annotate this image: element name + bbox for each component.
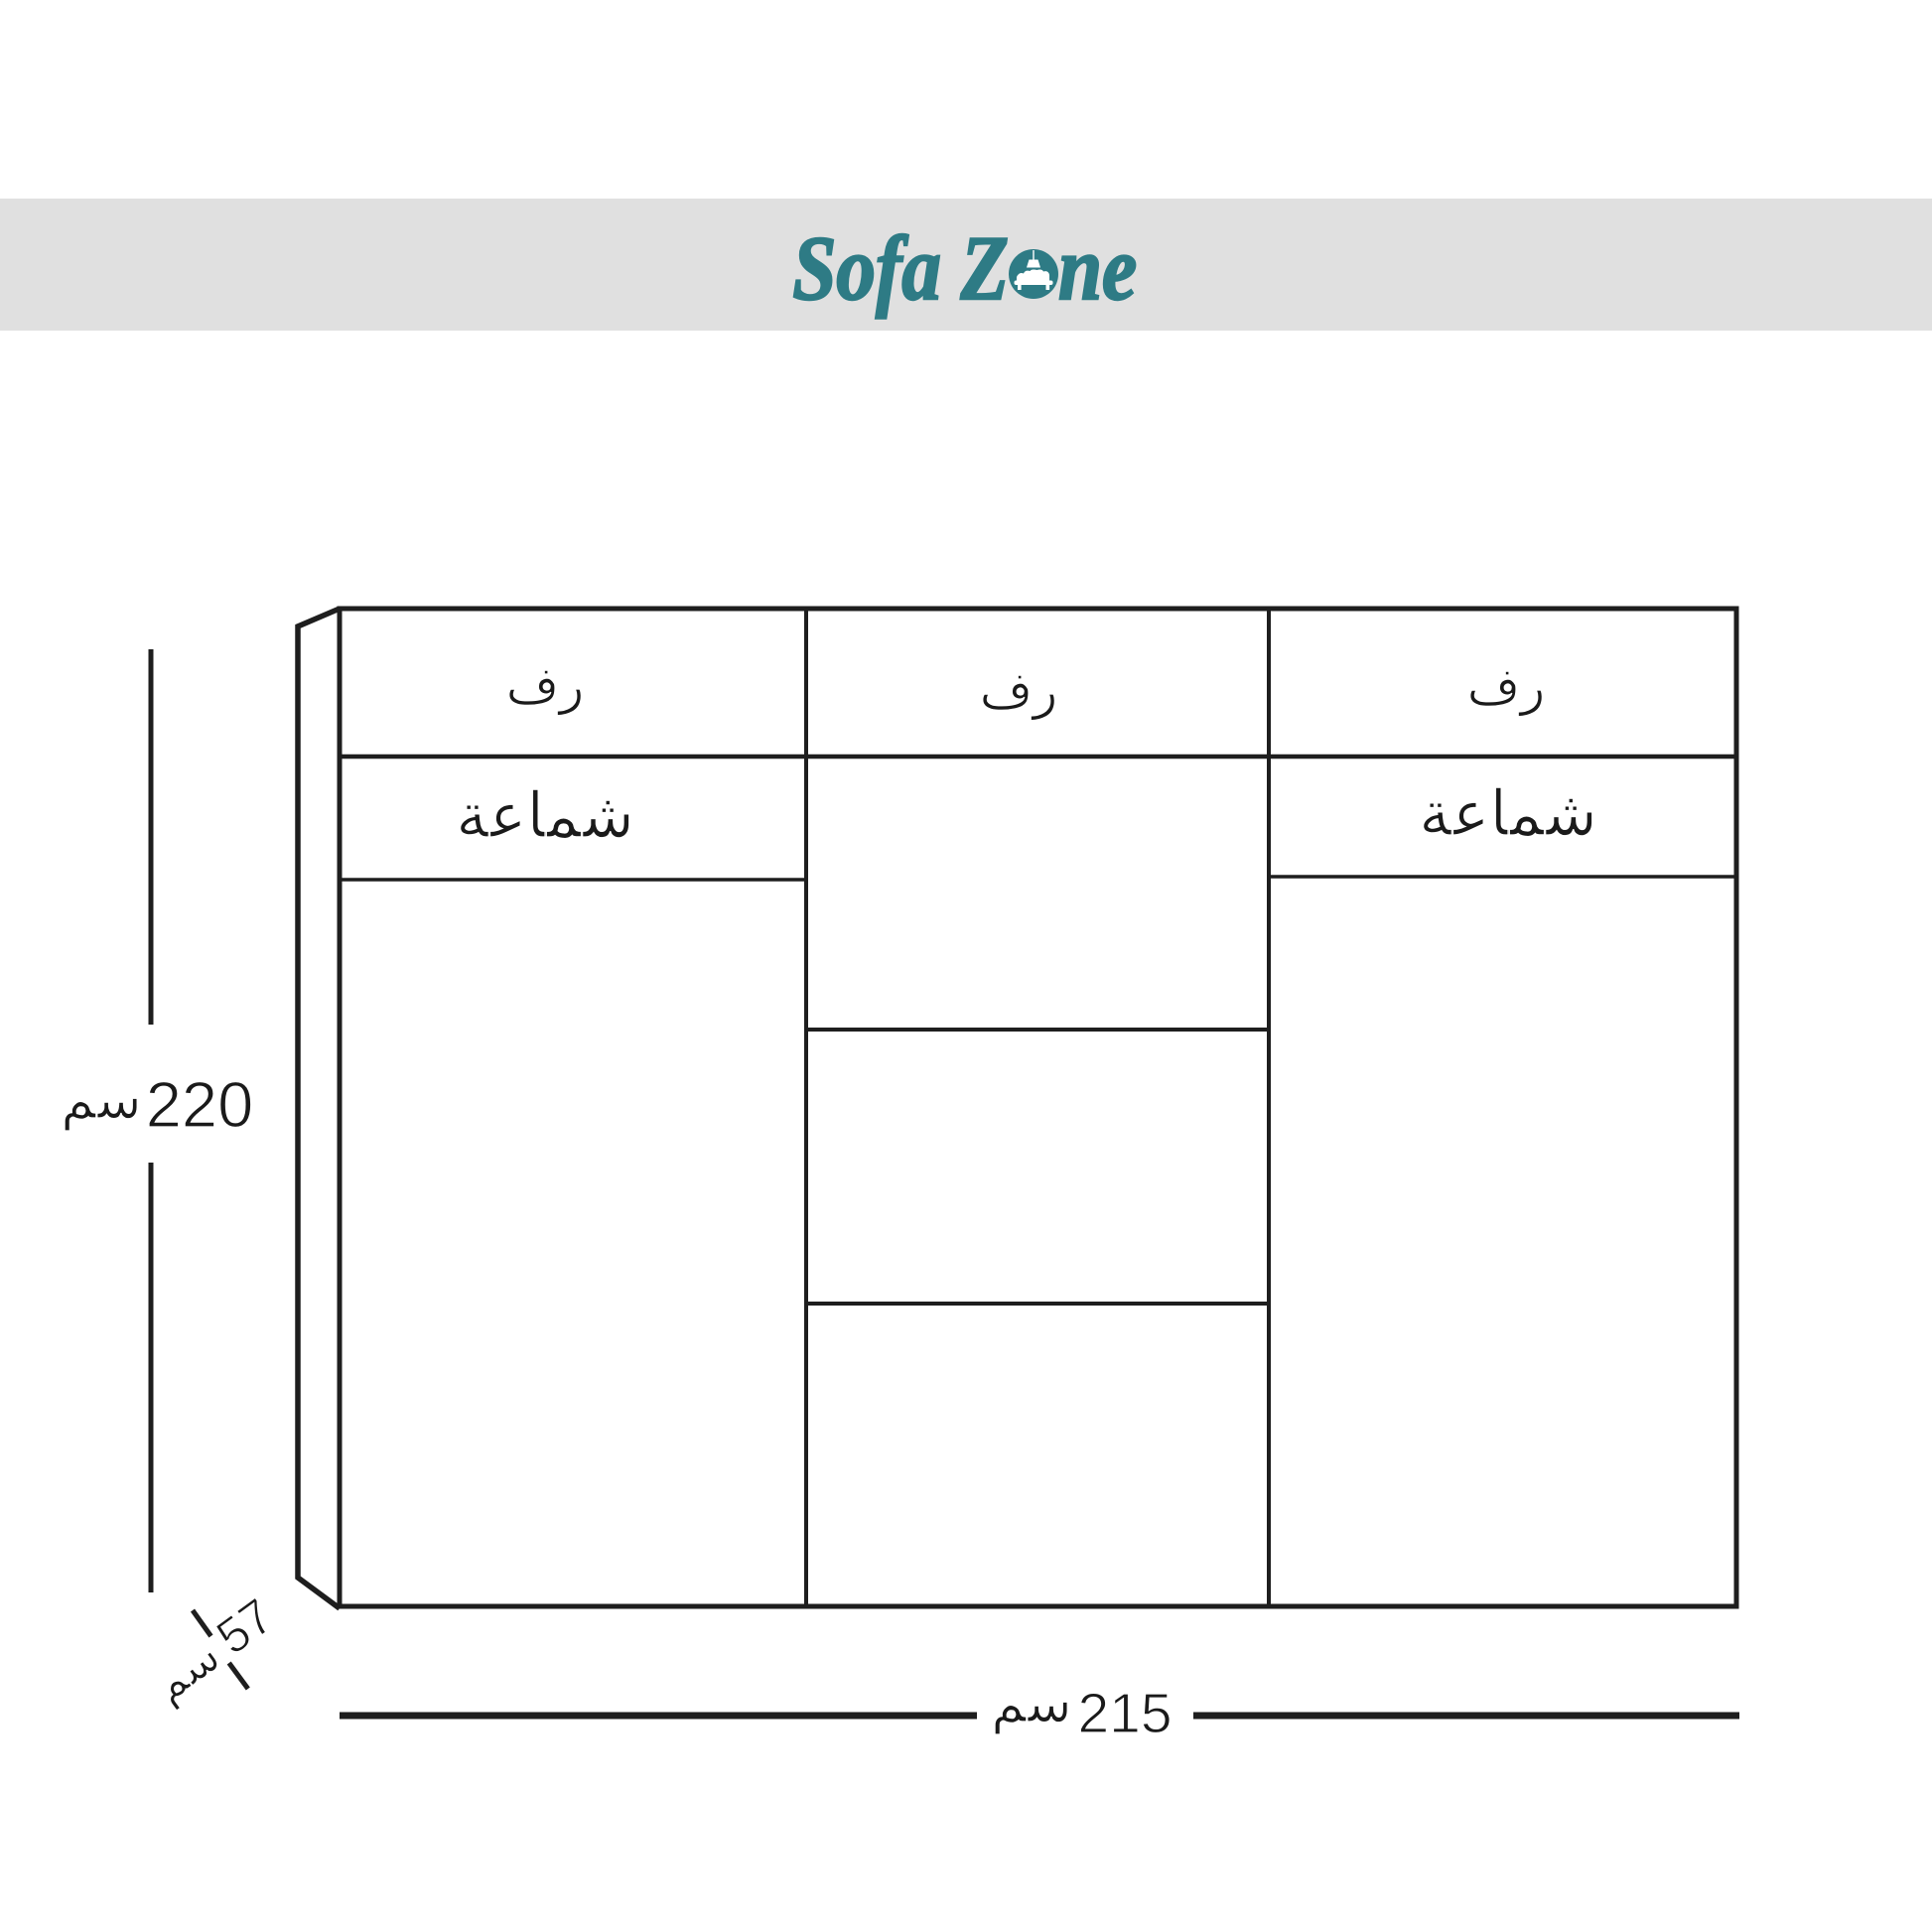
svg-text:Sofa Z: Sofa Z <box>792 218 1009 320</box>
svg-text:سم: سم <box>61 1070 141 1131</box>
svg-text:سم: سم <box>991 1674 1071 1734</box>
svg-text:57: 57 <box>207 1587 284 1665</box>
svg-text:شماعة: شماعة <box>456 781 634 851</box>
svg-text:رف: رف <box>979 662 1057 721</box>
svg-text:ne: ne <box>1058 218 1137 320</box>
svg-text:رف: رف <box>505 657 584 716</box>
svg-text:سم: سم <box>143 1629 230 1713</box>
svg-text:شماعة: شماعة <box>1419 779 1597 849</box>
svg-text:رف: رف <box>1466 658 1545 717</box>
svg-text:215: 215 <box>1077 1682 1172 1745</box>
svg-text:220: 220 <box>146 1068 253 1141</box>
